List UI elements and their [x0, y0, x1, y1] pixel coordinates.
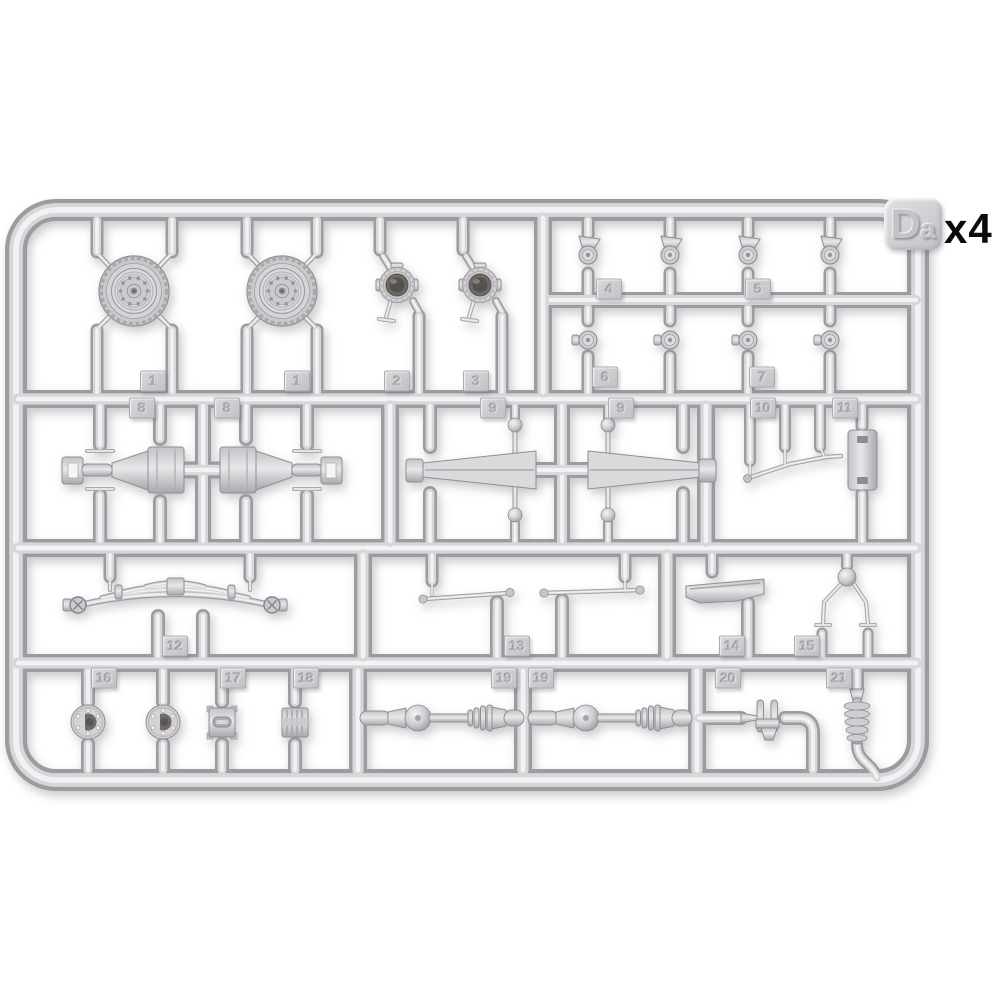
part-number-tag: 21 [826, 668, 852, 689]
part-number-tag: 19 [528, 668, 554, 689]
part-number-tag: 14 [719, 636, 745, 657]
tow-fork-part [741, 700, 779, 740]
part-number-tag: 8 [129, 398, 155, 419]
part-number-tag: 9 [480, 398, 506, 419]
part-number-tag: 12 [162, 636, 188, 657]
part-number-tag: 13 [504, 636, 530, 657]
road-wheel [247, 256, 317, 326]
part-number-tag: 6 [592, 367, 618, 388]
brake-drum [376, 263, 418, 303]
part-number-tag: 8 [214, 398, 240, 419]
plate-part [848, 430, 877, 490]
part-number-tag: 19 [491, 668, 517, 689]
rod-ball-end [744, 475, 752, 483]
slotted-plate-part [207, 706, 237, 739]
coil-part [844, 689, 870, 744]
part-number-tag: 1 [140, 371, 166, 392]
sprue-runner-frame [0, 0, 1000, 1000]
part-number-tag: 7 [749, 367, 775, 388]
link-ball-part [838, 568, 856, 586]
quantity-label: x4 [944, 205, 993, 253]
part-number-tag: 10 [750, 398, 776, 419]
part-number-tag: 18 [293, 668, 319, 689]
part-number-tag: 15 [794, 636, 820, 657]
sprue-corner-label: Da [884, 198, 942, 255]
sprue-photo: 11234567889910111213141516171819192021 D… [0, 0, 1000, 1000]
ribbed-plate-part [282, 708, 308, 737]
part-number-tag: 16 [91, 668, 117, 689]
brake-drum [459, 263, 501, 303]
road-wheel [99, 256, 169, 326]
part-number-tag: 20 [715, 668, 741, 689]
part-number-tag: 3 [463, 371, 489, 392]
part-number-tag: 11 [832, 398, 858, 419]
part-number-tag: 17 [220, 668, 246, 689]
tie-rod-part [419, 586, 644, 603]
sprue-corner-label-plate: Da [884, 198, 942, 250]
part-number-tag: 1 [284, 371, 310, 392]
part-number-tag: 4 [596, 279, 622, 300]
part-number-tag: 9 [608, 398, 634, 419]
leaf-spring-part [63, 578, 287, 613]
part-number-tag: 2 [384, 371, 410, 392]
part-number-tag: 5 [745, 279, 771, 300]
